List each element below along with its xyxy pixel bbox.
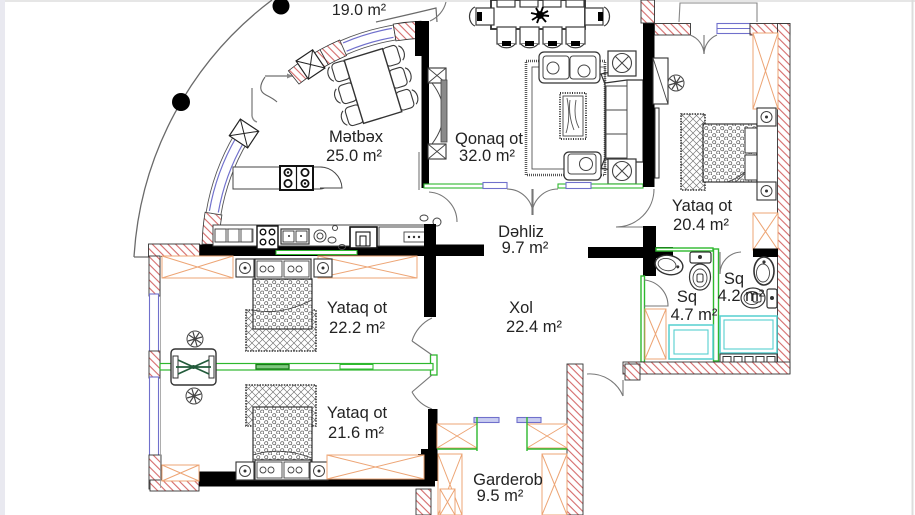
svg-text:Sq: Sq bbox=[677, 288, 697, 306]
svg-text:Qonaq ot: Qonaq ot bbox=[455, 130, 523, 148]
svg-text:32.0 m²: 32.0 m² bbox=[459, 147, 515, 165]
svg-text:21.6 m²: 21.6 m² bbox=[328, 424, 384, 442]
svg-text:9.7 m²: 9.7 m² bbox=[502, 239, 549, 257]
svg-text:25.0 m²: 25.0 m² bbox=[326, 147, 382, 165]
svg-text:Yataq ot: Yataq ot bbox=[327, 299, 388, 317]
svg-text:22.4 m²: 22.4 m² bbox=[506, 318, 562, 336]
svg-text:Sq: Sq bbox=[724, 270, 744, 288]
svg-text:Yataq ot: Yataq ot bbox=[327, 404, 388, 422]
svg-text:Yataq ot: Yataq ot bbox=[672, 197, 733, 215]
svg-text:Mətbəx: Mətbəx bbox=[329, 128, 384, 146]
svg-text:19.0 m²: 19.0 m² bbox=[332, 2, 387, 19]
svg-text:22.2 m²: 22.2 m² bbox=[329, 319, 385, 337]
svg-text:9.5 m²: 9.5 m² bbox=[477, 487, 524, 505]
svg-text:4.2 m²: 4.2 m² bbox=[718, 287, 765, 305]
svg-text:20.4 m²: 20.4 m² bbox=[673, 216, 729, 234]
svg-text:4.7 m²: 4.7 m² bbox=[671, 306, 718, 324]
svg-text:Xol: Xol bbox=[509, 299, 533, 317]
